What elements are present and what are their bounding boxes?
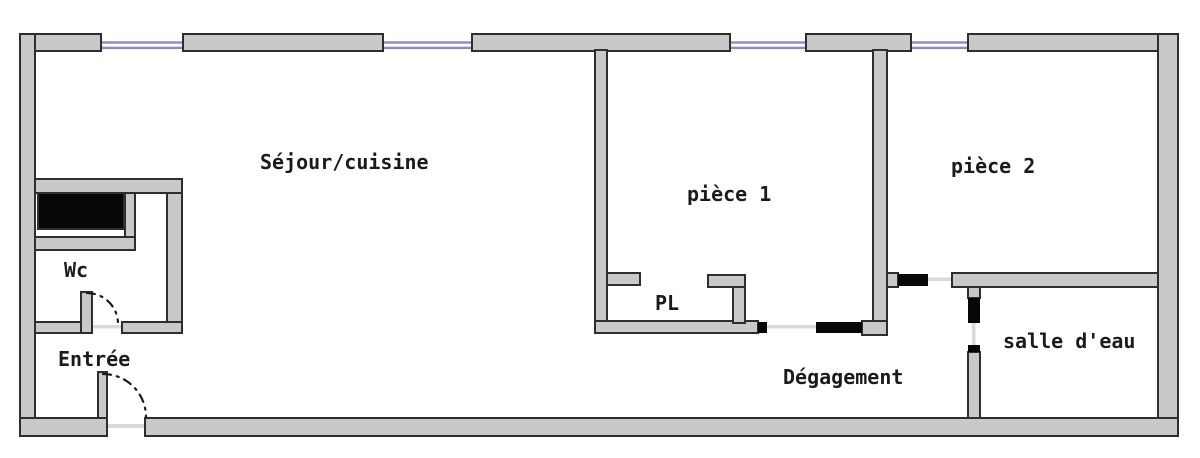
duct-shaft — [38, 193, 124, 229]
piece1-door-panel — [816, 322, 862, 333]
wall-segment — [472, 34, 730, 51]
window-symbol — [101, 41, 183, 43]
window-symbol — [383, 41, 472, 43]
window-symbol — [911, 41, 968, 43]
wall-segment — [35, 237, 135, 250]
bath-door-panel — [968, 298, 980, 323]
wall-segment — [167, 193, 182, 322]
wall-segment — [968, 352, 980, 418]
piece1-door-jamb — [758, 322, 767, 333]
piece2-door-panel — [898, 274, 928, 286]
room-label-piece-1: pièce 1 — [687, 182, 771, 206]
room-label-salle-d-eau: salle d'eau — [1003, 329, 1135, 353]
door-threshold — [972, 323, 976, 345]
window-symbol — [383, 47, 472, 49]
window-symbol — [730, 47, 806, 49]
window-symbol — [730, 41, 806, 43]
window-symbol — [911, 47, 968, 49]
room-label-piece-2: pièce 2 — [951, 154, 1035, 178]
wall-segment — [595, 50, 607, 333]
wall-segment — [952, 273, 1158, 287]
wall-segment — [708, 275, 745, 287]
door-threshold — [107, 424, 145, 428]
wall-segment — [887, 273, 898, 287]
wall-segment — [122, 322, 182, 333]
room-label-wc: Wc — [64, 258, 88, 282]
entree-door-leaf — [98, 372, 107, 418]
wall-segment — [20, 34, 35, 436]
wall-segment — [183, 34, 383, 51]
wall-segment — [607, 273, 640, 285]
door-threshold — [767, 325, 816, 329]
wc-door-leaf — [81, 292, 92, 333]
wall-segment — [873, 50, 887, 335]
wall-segment — [806, 34, 911, 51]
wall-segment — [733, 287, 745, 323]
room-label-entree: Entrée — [58, 347, 130, 371]
door-threshold — [92, 325, 122, 329]
window-symbol — [101, 47, 183, 49]
bath-door-jamb — [968, 345, 980, 352]
room-label-degagement: Dégagement — [783, 365, 903, 389]
wall-segment — [35, 322, 83, 333]
door-threshold — [928, 278, 952, 282]
wall-segment — [862, 321, 887, 335]
wall-segment — [35, 179, 182, 193]
wall-segment — [968, 287, 980, 298]
wall-segment — [145, 418, 1178, 436]
wall-segment — [20, 418, 107, 436]
floor-plan: Séjour/cuisinepièce 1pièce 2WcEntréePLDé… — [0, 0, 1200, 458]
wall-segment — [1158, 34, 1178, 436]
room-label-sejour-cuisine: Séjour/cuisine — [260, 150, 429, 174]
room-label-pl: PL — [655, 291, 679, 315]
floor-plan-canvas: Séjour/cuisinepièce 1pièce 2WcEntréePLDé… — [0, 0, 1200, 458]
wall-segment — [968, 34, 1178, 51]
